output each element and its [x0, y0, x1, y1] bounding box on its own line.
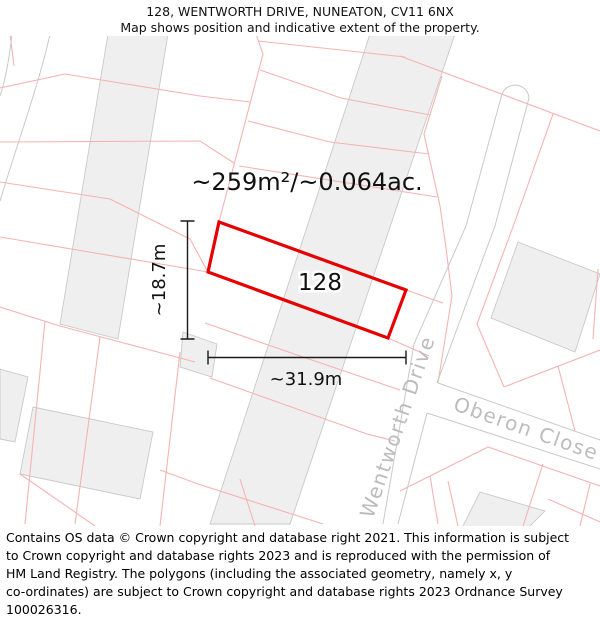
height-dimension-label: ~18.7m — [149, 244, 170, 317]
property-address-title: 128, WENTWORTH DRIVE, NUNEATON, CV11 6NX — [0, 4, 600, 20]
road-edge — [0, 36, 50, 201]
parcel-line — [558, 366, 575, 431]
parcel-line — [430, 476, 438, 524]
street-label-wentworth-drive: Wentworth Drive — [355, 333, 440, 521]
area-label: ~259m²/~0.064ac. — [191, 168, 422, 196]
copyright-line: to Crown copyright and database rights 2… — [6, 547, 594, 565]
copyright-notice: Contains OS data © Crown copyright and d… — [0, 526, 600, 619]
wentworth-drive-road — [437, 98, 529, 383]
building — [491, 242, 600, 352]
building — [20, 407, 153, 499]
copyright-line: Contains OS data © Crown copyright and d… — [6, 529, 594, 547]
height-dimension-line — [181, 221, 195, 339]
copyright-line: co-ordinates) are subject to Crown copyr… — [6, 583, 594, 601]
copyright-line: 100026316. — [6, 601, 594, 619]
copyright-line: HM Land Registry. The polygons (includin… — [6, 565, 594, 583]
map-image: Wentworth Drive Oberon Close ~259m²/~0.0… — [0, 36, 600, 526]
plot-number-label: 128 — [298, 270, 342, 296]
page-header: 128, WENTWORTH DRIVE, NUNEATON, CV11 6NX… — [0, 0, 600, 36]
parcel-line — [548, 499, 600, 522]
parcel-line — [580, 484, 590, 526]
property-map: Wentworth Drive Oberon Close ~259m²/~0.0… — [0, 36, 600, 526]
parcel-line — [160, 352, 180, 526]
width-dimension-label: ~31.9m — [270, 369, 343, 390]
parcel-line — [504, 350, 600, 387]
parcel-line — [448, 481, 458, 526]
parcel-line — [10, 36, 14, 66]
building — [0, 369, 28, 442]
map-description-subtitle: Map shows position and indicative extent… — [0, 20, 600, 36]
